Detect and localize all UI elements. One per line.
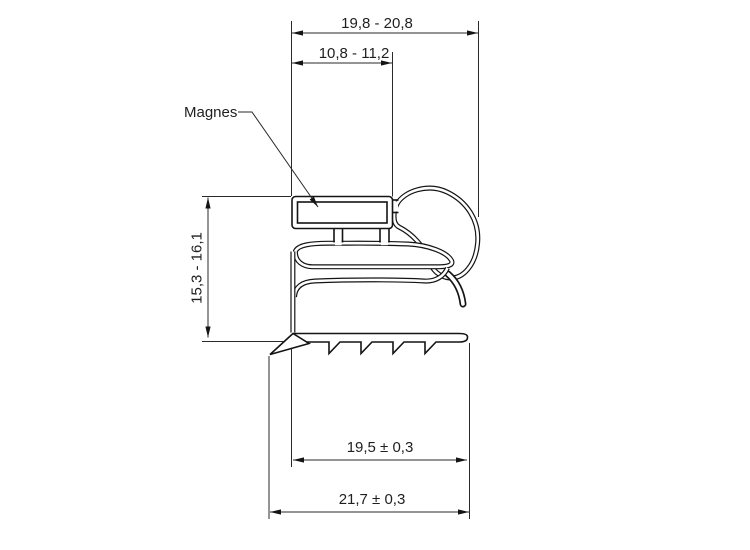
base-flange xyxy=(294,334,468,354)
dim-top-inner: 10,8 - 11,2 xyxy=(319,45,390,62)
gasket-profile-drawing: Magnes 19,8 - 20,8 10,8 - 11,2 15,3 - 16… xyxy=(0,0,750,550)
seal-tail-flap xyxy=(448,274,463,304)
magnet-label: Magnes xyxy=(184,104,237,121)
dim-bottom-outer: 21,7 ± 0,3 xyxy=(339,491,406,508)
gasket-profile xyxy=(270,188,478,354)
pocket-neck-left xyxy=(334,229,343,246)
dim-bottom-inner: 19,5 ± 0,3 xyxy=(347,439,414,456)
pocket-neck-right xyxy=(380,229,389,246)
body-top-wall xyxy=(295,268,448,297)
magnet-leader-line xyxy=(238,112,318,207)
dim-height: 15,3 - 16,1 xyxy=(189,232,206,304)
drawing-canvas: Magnes 19,8 - 20,8 10,8 - 11,2 15,3 - 16… xyxy=(0,0,750,550)
bellows-chamber xyxy=(295,243,452,267)
dim-top-outer: 19,8 - 20,8 xyxy=(341,15,413,32)
magnet xyxy=(298,202,388,223)
